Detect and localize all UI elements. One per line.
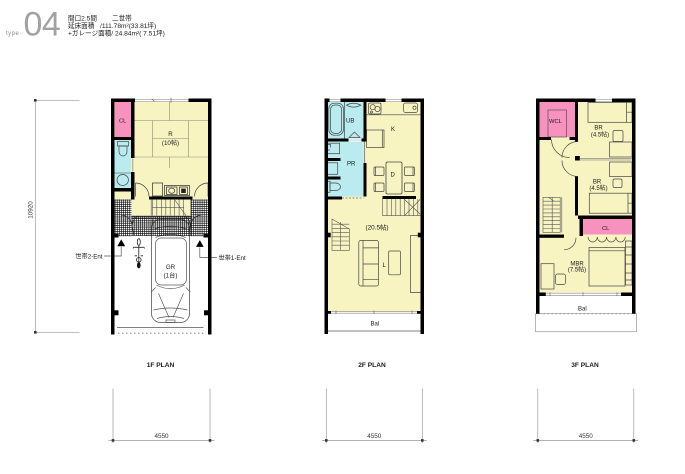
- svg-text:type·: type·: [6, 31, 22, 37]
- svg-text:04: 04: [24, 6, 61, 44]
- svg-text:K: K: [391, 127, 395, 133]
- svg-text:UB: UB: [346, 119, 354, 125]
- svg-text:D: D: [391, 173, 396, 179]
- svg-text:(4.5帖): (4.5帖): [589, 184, 607, 192]
- svg-text:(20.5帖): (20.5帖): [365, 223, 388, 232]
- svg-text:CL: CL: [602, 226, 610, 232]
- svg-text:二世帯: 二世帯: [112, 14, 132, 23]
- svg-text:3F PLAN: 3F PLAN: [571, 362, 599, 369]
- svg-text:世帯1-Ent: 世帯1-Ent: [219, 254, 246, 262]
- svg-text:Bal: Bal: [371, 322, 380, 328]
- svg-text:PR: PR: [347, 161, 356, 167]
- svg-text:Bal: Bal: [578, 307, 587, 313]
- svg-text:CL: CL: [119, 119, 127, 125]
- svg-text:1F PLAN: 1F PLAN: [147, 362, 175, 369]
- svg-text:GR: GR: [166, 264, 176, 271]
- svg-text:WCL: WCL: [549, 119, 563, 125]
- svg-text:(10帖): (10帖): [162, 139, 179, 147]
- svg-text:世帯2-Ent: 世帯2-Ent: [75, 253, 102, 261]
- svg-text:延床面積: 延床面積: [68, 21, 95, 30]
- svg-text:R: R: [168, 131, 173, 138]
- svg-text:/111.78m²(33.81坪): /111.78m²(33.81坪): [100, 22, 156, 30]
- svg-text:4550: 4550: [367, 433, 382, 440]
- svg-text:BR: BR: [594, 125, 603, 131]
- svg-text:+ガレージ面積/ 24.84m²( 7.51坪): +ガレージ面積/ 24.84m²( 7.51坪): [68, 29, 165, 38]
- svg-text:(7.5帖): (7.5帖): [568, 266, 586, 274]
- svg-text:(4.5帖): (4.5帖): [591, 130, 609, 138]
- svg-text:(1台): (1台): [164, 272, 178, 280]
- svg-text:BR: BR: [593, 179, 602, 185]
- svg-text:2F PLAN: 2F PLAN: [358, 362, 386, 369]
- svg-text:間口2.5間: 間口2.5間: [68, 15, 97, 23]
- svg-text:10920: 10920: [28, 201, 35, 219]
- svg-text:4550: 4550: [579, 433, 594, 440]
- svg-text:4550: 4550: [154, 433, 169, 440]
